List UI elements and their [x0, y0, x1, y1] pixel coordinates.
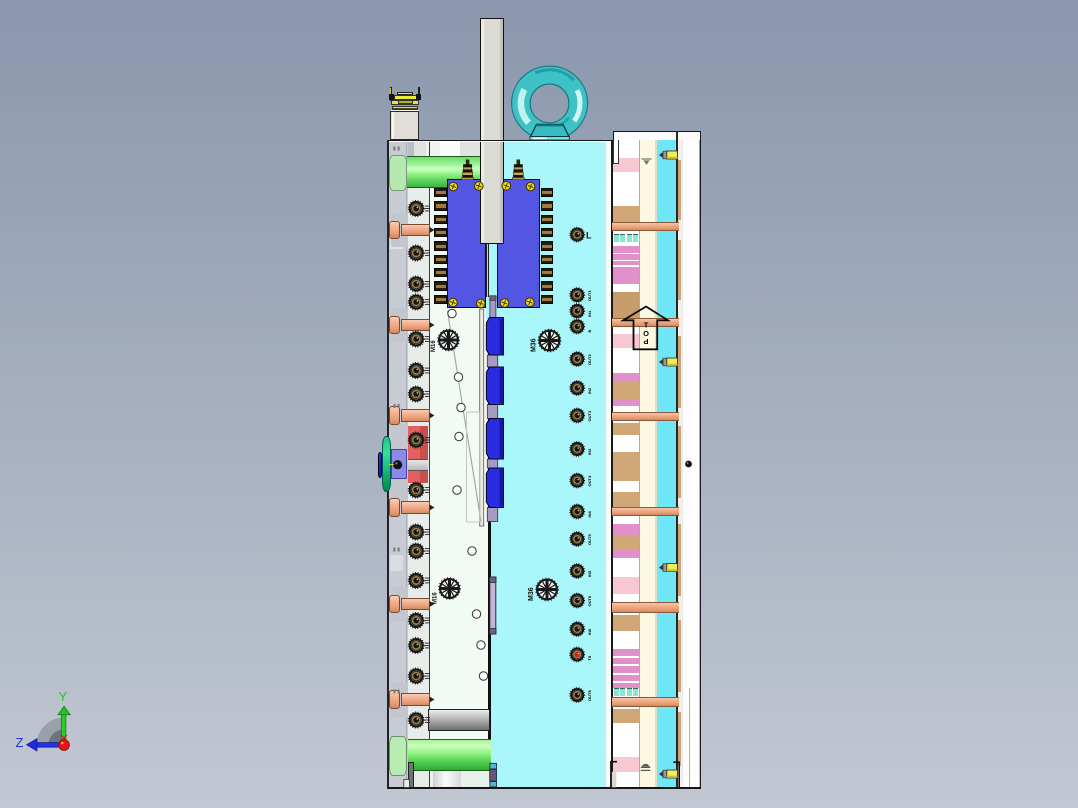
svg-text:IN1: IN1: [587, 310, 592, 317]
svg-text:M36: M36: [528, 587, 535, 601]
svg-text:B: B: [587, 330, 592, 333]
svg-text:Y: Y: [59, 689, 68, 704]
svg-text:L: L: [586, 231, 592, 241]
svg-text:IN5: IN5: [587, 570, 592, 577]
svg-text:OUT1: OUT1: [587, 290, 592, 301]
svg-text:O: O: [643, 329, 649, 338]
svg-text:OUT3: OUT3: [587, 410, 592, 421]
svg-text:OUT5: OUT5: [587, 534, 592, 545]
svg-text:IN6: IN6: [587, 628, 592, 635]
svg-text:IN2: IN2: [587, 387, 592, 394]
svg-text:T8: T8: [587, 655, 592, 660]
svg-text:M16: M16: [431, 340, 437, 352]
svg-text:OUT2: OUT2: [587, 354, 592, 365]
svg-text:Z: Z: [16, 735, 24, 750]
svg-text:OUT8: OUT8: [587, 690, 592, 701]
svg-text:M16: M16: [433, 592, 439, 604]
svg-text:M36: M36: [531, 338, 538, 352]
svg-text:IN4: IN4: [587, 511, 592, 518]
svg-text:IN3: IN3: [587, 448, 592, 455]
svg-text:OUT6: OUT6: [587, 595, 592, 606]
svg-text:P: P: [643, 337, 648, 346]
svg-text:OUT4: OUT4: [587, 475, 592, 486]
